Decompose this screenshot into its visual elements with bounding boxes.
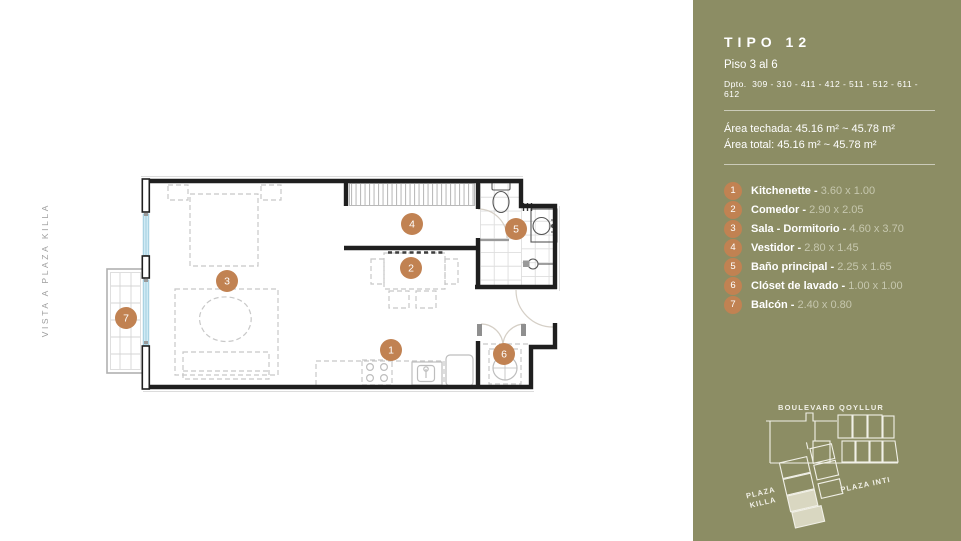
map-buildings-south	[776, 437, 848, 528]
map-buildings-north	[813, 415, 898, 463]
floorplan-page: VISTA A PLAZA KILLA	[0, 0, 961, 541]
map-street-label: BOULEVARD QOYLLUR	[778, 403, 884, 412]
map-plaza-inti-label: PLAZA INTI	[840, 475, 892, 494]
location-map: BOULEVARD QOYLLUR PLAZA KILLA PLAZA INTI	[0, 0, 961, 541]
